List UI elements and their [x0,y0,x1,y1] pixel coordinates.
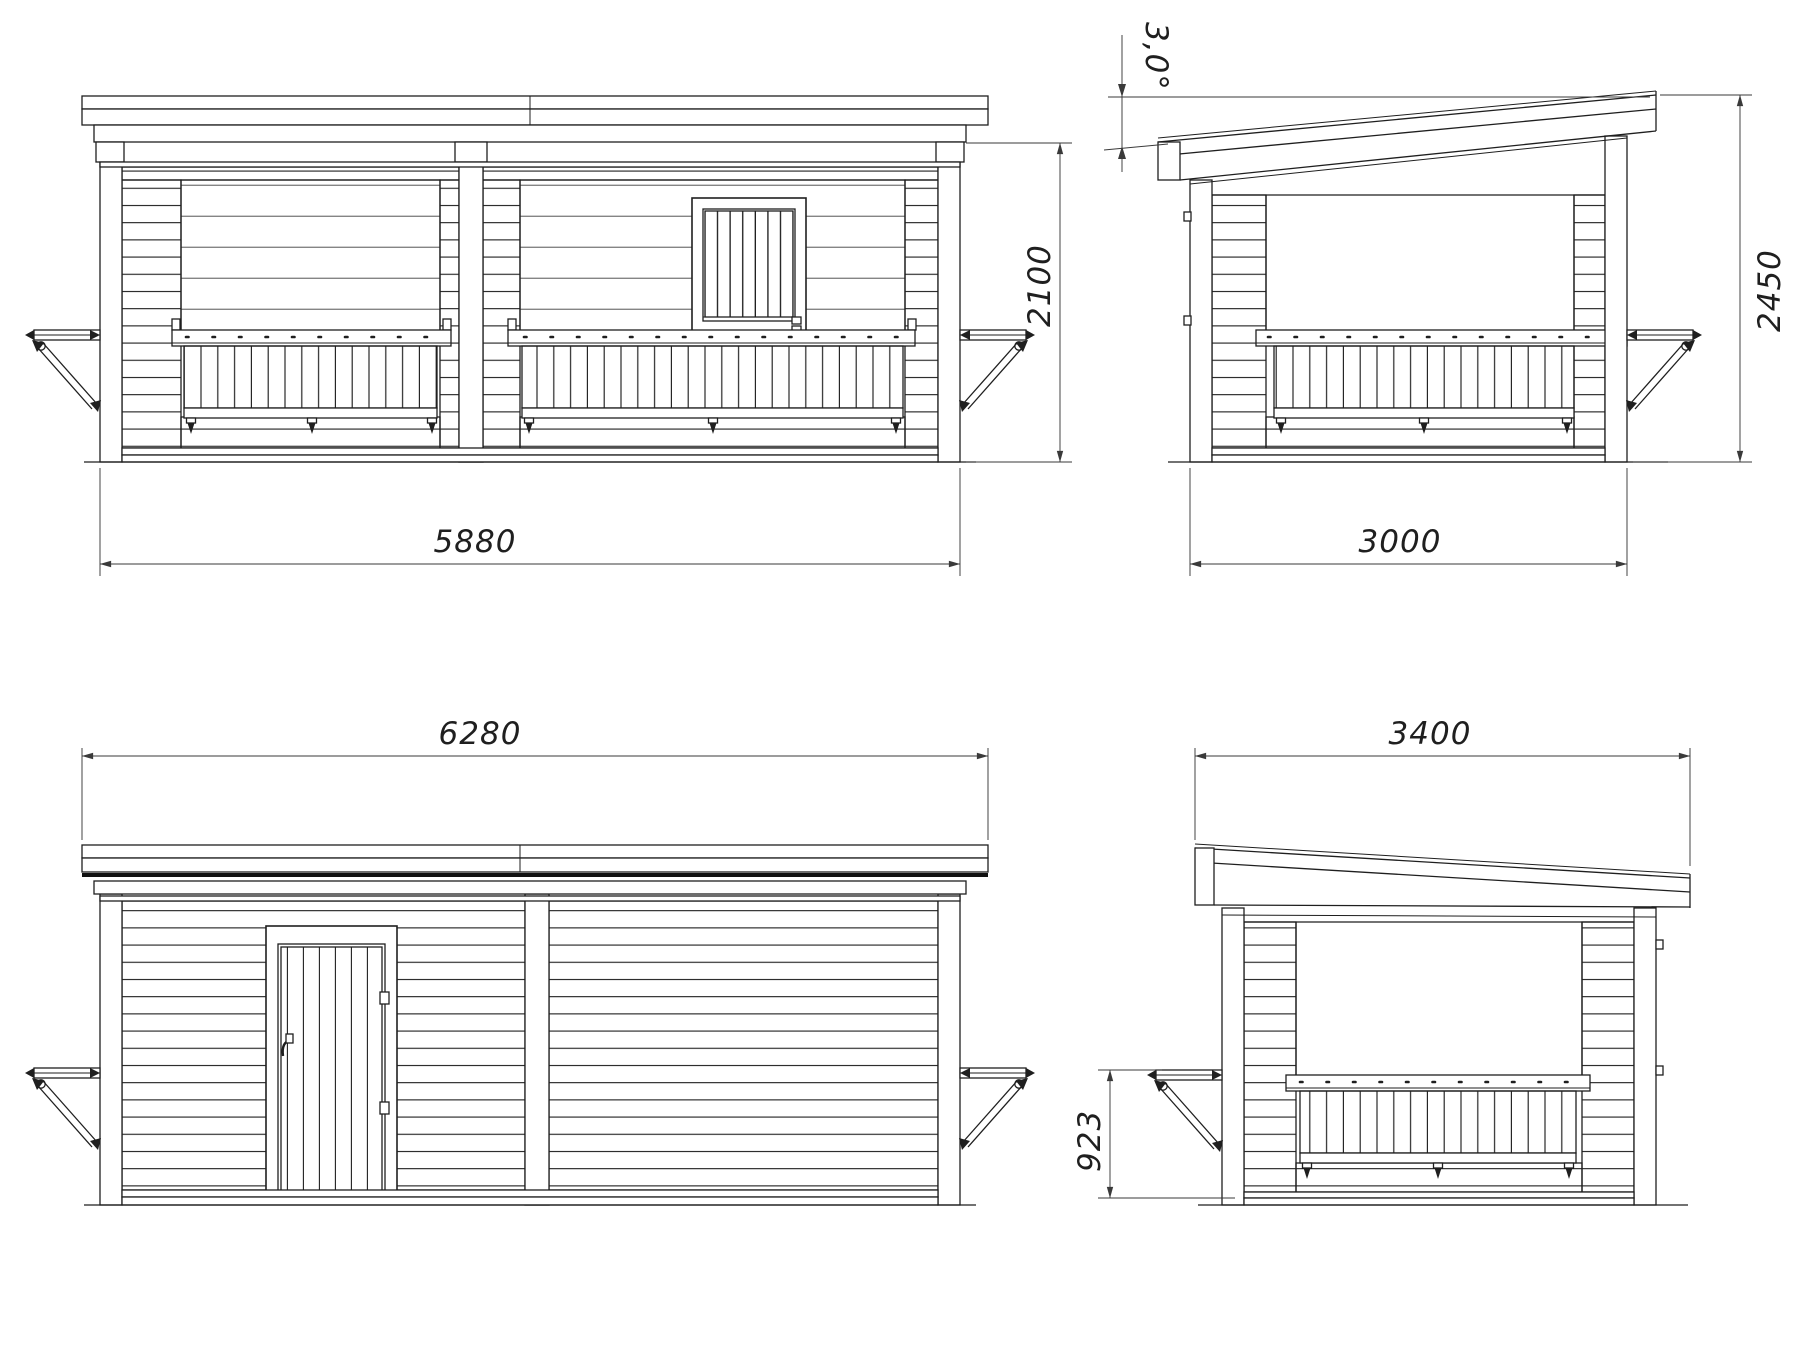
rear-elevation-view: 6280 [25,716,1035,1205]
fold-out-shelf-right [959,1068,1035,1150]
roof-slope-annotation: 3,0° [1104,22,1650,172]
front-elevation-view: 5880 2100 [25,96,1072,576]
side-b-serving-opening [1286,922,1590,1179]
dimension-front-height: 2100 [966,143,1072,462]
drop-flap-slats [522,346,903,408]
side-b-roof [1195,844,1690,917]
front-right-serving-hatch [508,180,916,434]
door-hinge [380,1102,389,1114]
fold-out-shelf [1147,1070,1223,1152]
technical-drawing-sheet: 5880 2100 [0,0,1800,1350]
counter-board [1256,330,1627,346]
dimension-front-width: 5880 [100,468,960,576]
elevation-drawing-svg: 5880 2100 [0,0,1800,1350]
fold-out-shelf [1626,330,1702,412]
dimension-side-b-depth: 3400 [1195,716,1690,866]
drop-flap-slats [184,346,437,408]
dimension-label-side-a-depth: 3000 [1359,524,1442,560]
side-elevation-b-view: 3400 923 [1072,716,1690,1205]
side-a-roof [1158,91,1656,184]
rear-roof [82,845,988,901]
rear-door [266,926,397,1200]
dimension-rear-width: 6280 [82,716,988,840]
side-a-serving-opening [1256,195,1627,434]
fold-out-shelf-left [25,1068,101,1150]
dimension-side-a-height: 2450 [1633,95,1788,462]
fold-out-shelf-left [25,330,101,412]
front-left-serving-hatch [172,180,451,434]
window-latch [792,317,801,324]
door-hinge [380,992,389,1004]
dimension-side-a-depth: 3000 [1190,468,1627,576]
barred-window [692,198,806,332]
fold-out-shelf-right [959,330,1035,412]
dimension-label-rear-width: 6280 [439,716,522,752]
drop-flap-slats [1274,346,1574,408]
dimension-label-side-a-height: 2450 [1752,249,1788,332]
front-roof [82,96,988,167]
side-elevation-a-view: 3,0° 3000 2450 [1104,22,1788,576]
dimension-label-roof-slope: 3,0° [1138,22,1174,91]
drop-flap-slats [1300,1091,1576,1153]
dimension-label-front-height: 2100 [1022,244,1058,327]
dimension-label-front-width: 5880 [434,524,517,560]
counter-board [1286,1075,1590,1091]
dimension-label-side-b-depth: 3400 [1389,716,1472,752]
dimension-label-hatch-height: 923 [1072,1110,1108,1172]
